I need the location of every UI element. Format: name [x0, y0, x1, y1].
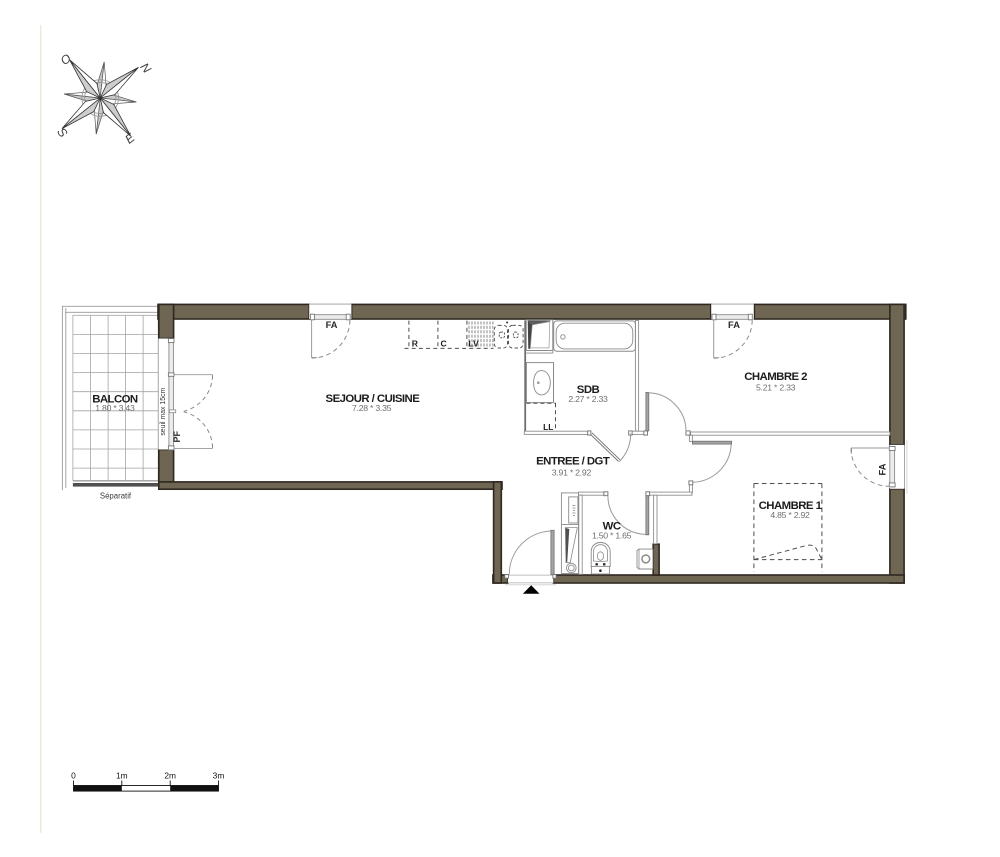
svg-text:1m: 1m [116, 771, 128, 781]
svg-text:5.21 * 2.33: 5.21 * 2.33 [756, 383, 796, 393]
svg-text:PF: PF [172, 431, 182, 443]
svg-text:LL: LL [543, 422, 553, 432]
svg-text:N: N [137, 60, 154, 76]
svg-text:Séparatif: Séparatif [100, 491, 132, 500]
svg-text:LV: LV [468, 338, 479, 348]
svg-text:FA: FA [878, 463, 888, 475]
svg-text:R: R [412, 338, 419, 348]
svg-text:1.50 * 1.65: 1.50 * 1.65 [592, 531, 632, 541]
svg-text:0: 0 [71, 771, 76, 781]
svg-text:3m: 3m [213, 771, 225, 781]
svg-text:seuil max 15cm: seuil max 15cm [160, 388, 167, 436]
svg-text:FA: FA [728, 320, 740, 330]
svg-text:2.27 * 2.33: 2.27 * 2.33 [568, 394, 608, 404]
svg-text:7.28 * 3.35: 7.28 * 3.35 [352, 403, 392, 413]
svg-text:4.85 * 2.92: 4.85 * 2.92 [770, 510, 810, 520]
svg-text:E: E [122, 130, 138, 147]
svg-text:FA: FA [326, 320, 338, 330]
svg-text:3.91 * 2.92: 3.91 * 2.92 [552, 468, 592, 478]
svg-text:O: O [58, 51, 74, 68]
svg-text:S: S [54, 125, 70, 140]
svg-text:2m: 2m [164, 771, 176, 781]
svg-text:C: C [440, 338, 446, 348]
svg-text:CHAMBRE 2: CHAMBRE 2 [744, 371, 807, 383]
svg-text:1.80 * 3.43: 1.80 * 3.43 [95, 403, 135, 413]
svg-text:ENTREE / DGT: ENTREE / DGT [536, 455, 610, 467]
